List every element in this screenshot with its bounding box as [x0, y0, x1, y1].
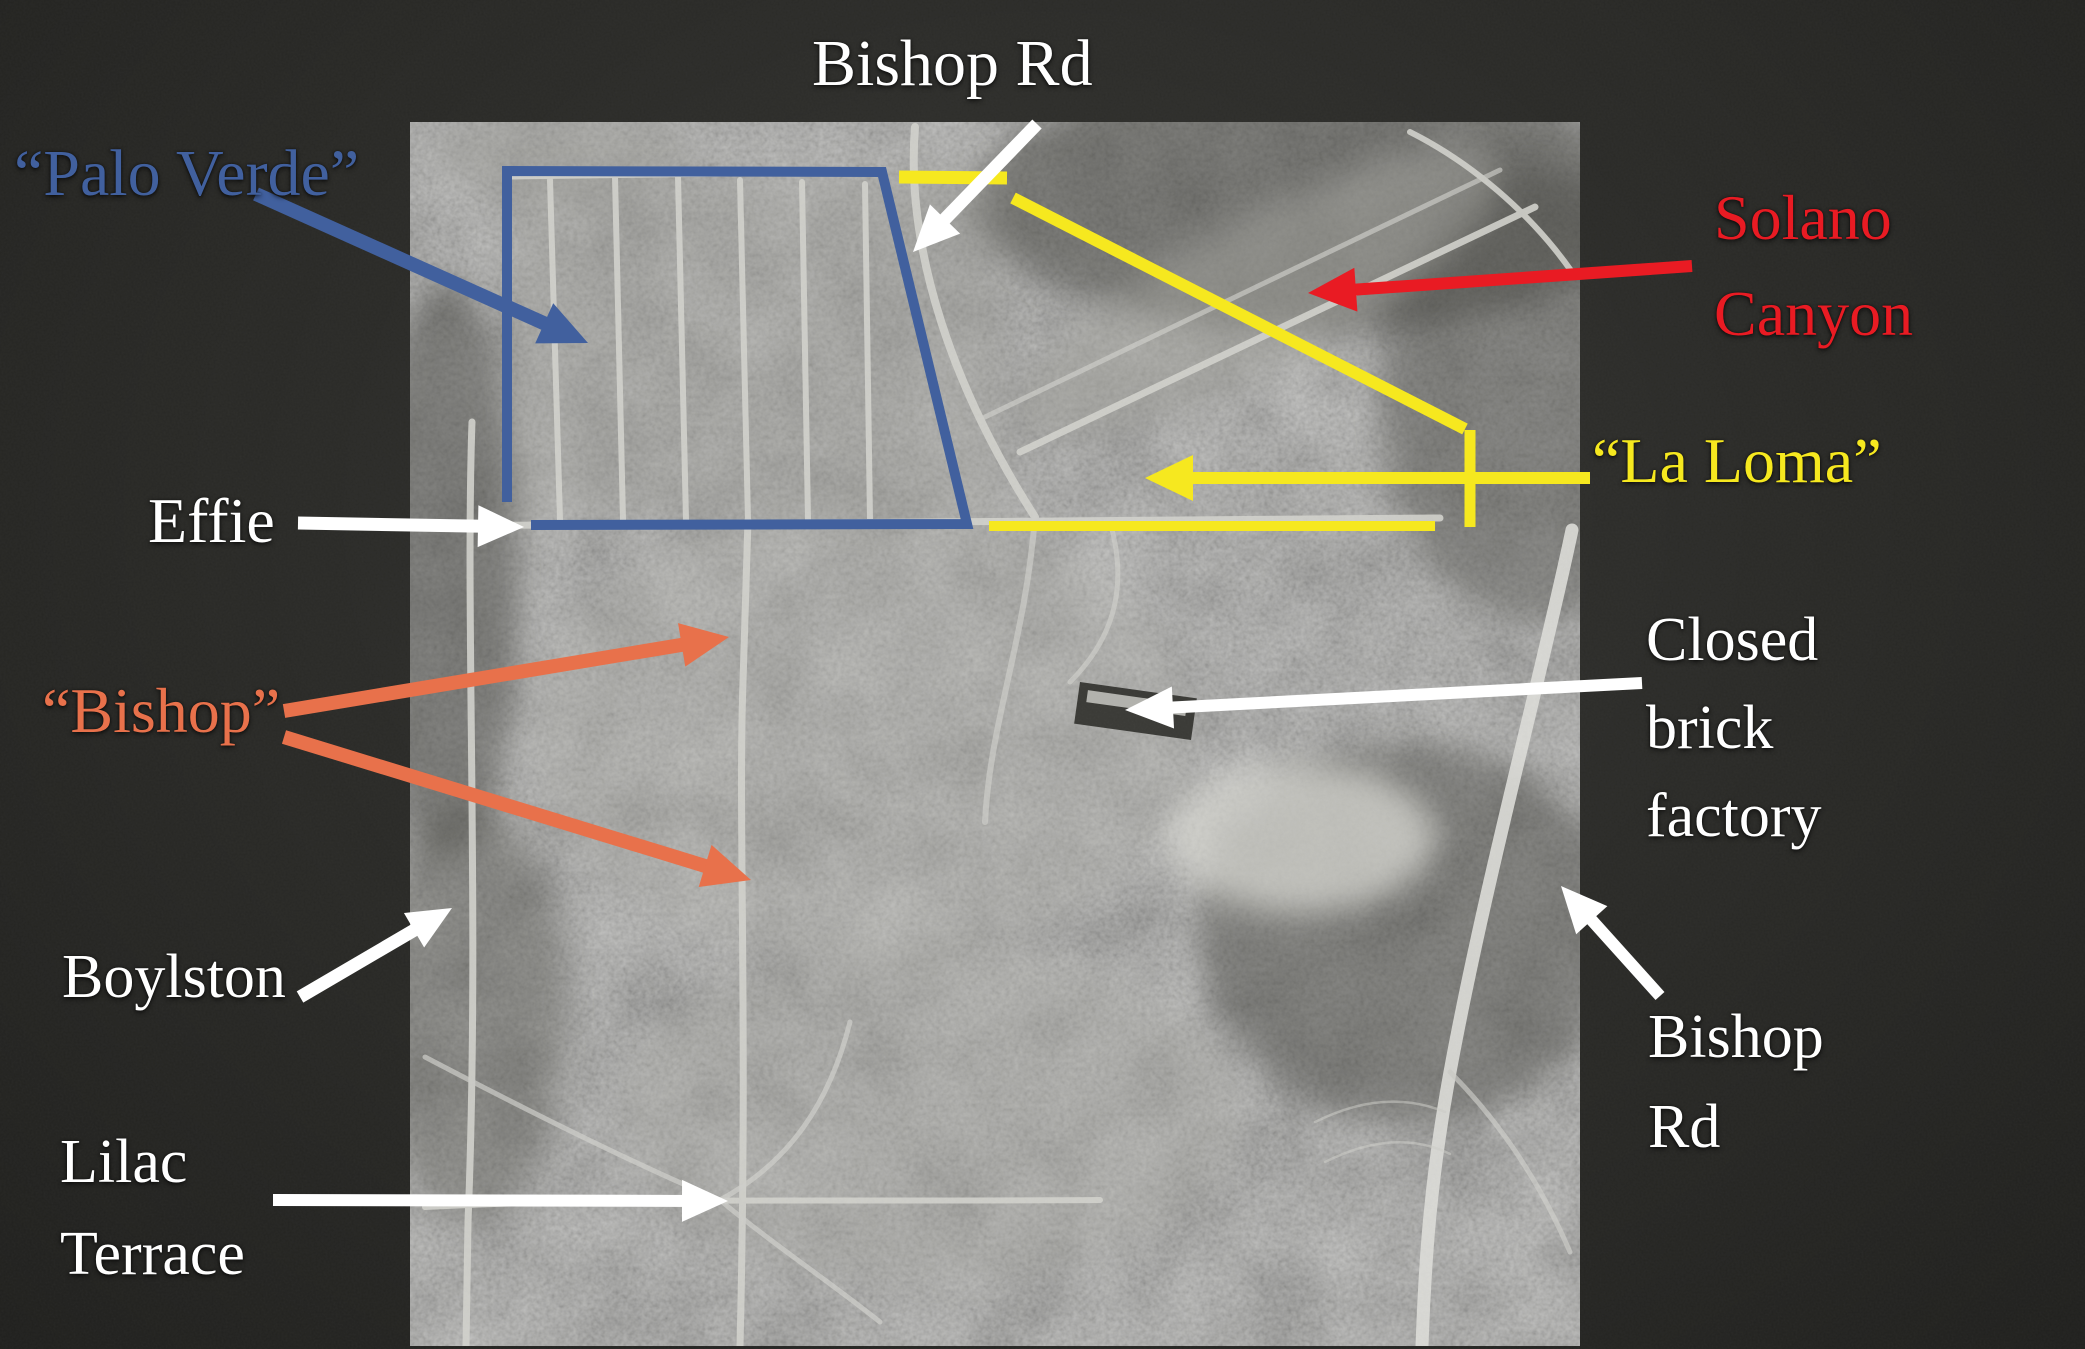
label-bishop-rd-right-line2: Rd: [1648, 1082, 1824, 1172]
label-solano-canyon: Solano Canyon: [1714, 170, 1913, 362]
aerial-photo: [410, 122, 1580, 1346]
label-lilac-line2: Terrace: [60, 1208, 245, 1300]
label-solano-line1: Solano: [1714, 170, 1913, 266]
label-bishop-rd-right-line1: Bishop: [1648, 992, 1824, 1082]
label-bishop-quoted: “Bishop”: [42, 676, 280, 745]
label-closed-brick-factory: Closed brick factory: [1646, 596, 1822, 860]
label-lilac-terrace: Lilac Terrace: [60, 1116, 245, 1300]
slide: Bishop Rd “Palo Verde” Solano Canyon “La…: [0, 0, 2085, 1349]
label-bishop-rd-top: Bishop Rd: [812, 28, 1093, 99]
label-solano-line2: Canyon: [1714, 266, 1913, 362]
label-la-loma: “La Loma”: [1592, 426, 1882, 495]
label-brick-line2: brick: [1646, 684, 1822, 772]
label-palo-verde: “Palo Verde”: [14, 138, 359, 209]
label-lilac-line1: Lilac: [60, 1116, 245, 1208]
label-brick-line3: factory: [1646, 772, 1822, 860]
label-boylston: Boylston: [62, 944, 286, 1011]
label-brick-line1: Closed: [1646, 596, 1822, 684]
label-effie: Effie: [148, 486, 275, 555]
label-bishop-rd-right: Bishop Rd: [1648, 992, 1824, 1172]
